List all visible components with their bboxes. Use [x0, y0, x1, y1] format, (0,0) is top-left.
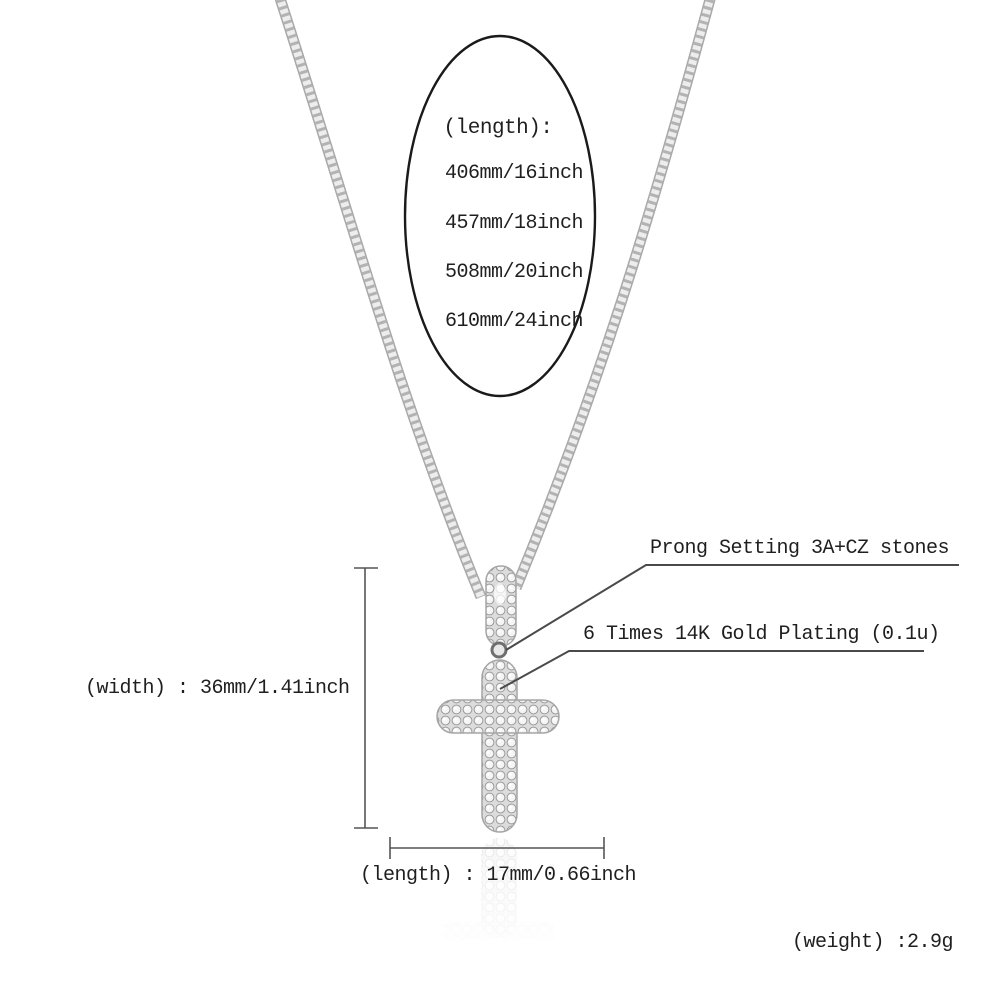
plating-leader-line [500, 651, 924, 689]
gold-plating-label: 6 Times 14K Gold Plating (0.1u) [583, 623, 940, 647]
cross-vertical-bar [482, 660, 517, 832]
size-option-20inch: 508mm/20inch [445, 261, 583, 285]
size-option-24inch: 610mm/24inch [445, 310, 583, 334]
width-measurement-label: (width) : 36mm/1.41inch [85, 677, 350, 701]
bail-connector-ring [492, 643, 506, 657]
length-measurement-label: (length) : 17mm/0.66inch [360, 864, 636, 888]
cross-horizontal-bar [437, 700, 559, 733]
prong-setting-label: Prong Setting 3A+CZ stones [650, 537, 949, 561]
size-chart-title: (length): [444, 116, 553, 141]
chain-left-strand [278, 0, 481, 597]
chain-right-strand [516, 0, 712, 588]
weight-label: (weight) :2.9g [792, 931, 953, 955]
necklace-graphic [0, 0, 1000, 1000]
product-spec-image: (length): 406mm/16inch 457mm/18inch 508m… [0, 0, 1000, 1000]
size-option-16inch: 406mm/16inch [445, 162, 583, 186]
bail-opening [494, 583, 506, 605]
reflection-fade [415, 832, 595, 967]
pendant-bail [486, 566, 516, 646]
width-dimension-line [354, 568, 378, 828]
cross-pendant [437, 566, 559, 832]
size-option-18inch: 457mm/18inch [445, 212, 583, 236]
